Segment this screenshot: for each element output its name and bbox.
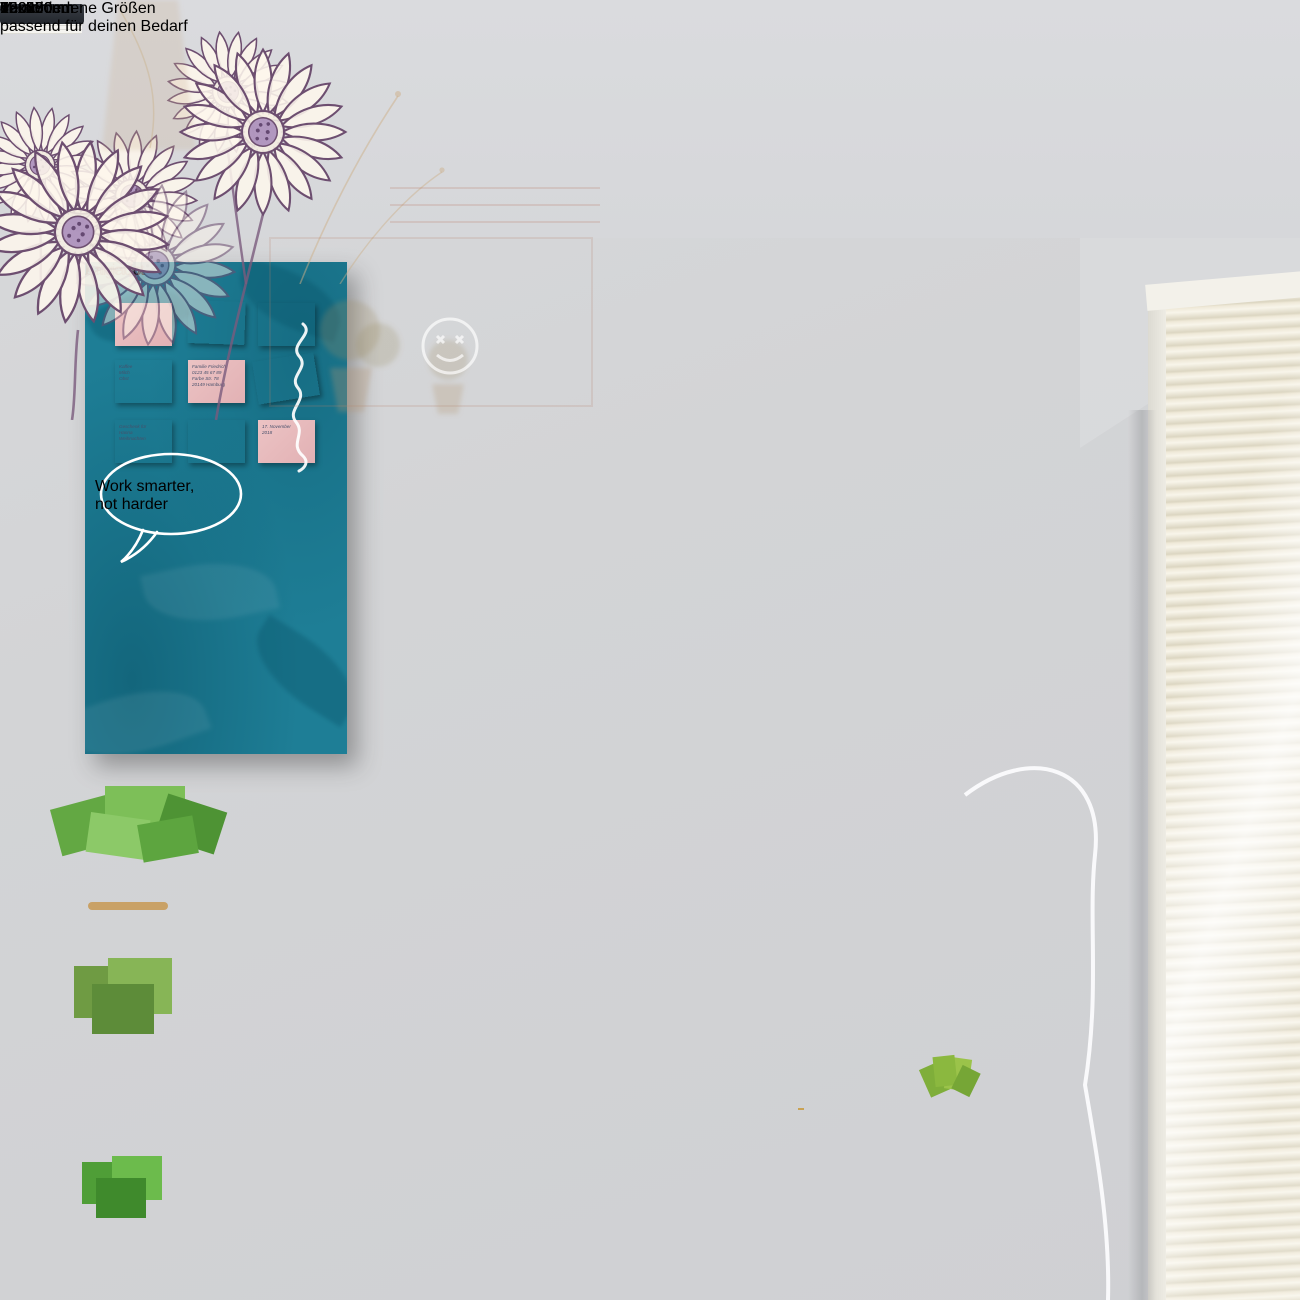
cork-magnet xyxy=(292,459,312,477)
plant-pot xyxy=(102,1212,150,1254)
shelf-rail xyxy=(55,850,72,1300)
size-badge-120x90: 120x90cm xyxy=(0,0,74,18)
product-scene: Kaffee Milch Obst Familie Friedrich 0123… xyxy=(0,0,1300,1300)
plant-pot xyxy=(96,858,160,908)
cork-magnet xyxy=(271,470,291,488)
window-glare xyxy=(1166,296,1300,1300)
wall-corner-shadow xyxy=(1128,410,1156,1300)
daisy-artwork-large xyxy=(0,0,616,420)
succulent-pot xyxy=(928,1090,972,1128)
pot-saucer xyxy=(88,902,168,910)
plant-pot xyxy=(98,1028,154,1084)
speech-bubble-text: Work smarter, not harder xyxy=(95,478,194,514)
lamp-cord xyxy=(870,690,1130,1300)
banner-subtitle: passend für deinen Bedarf xyxy=(0,18,188,36)
shelf-rail xyxy=(218,850,238,1300)
invoice-text-block xyxy=(97,420,193,429)
